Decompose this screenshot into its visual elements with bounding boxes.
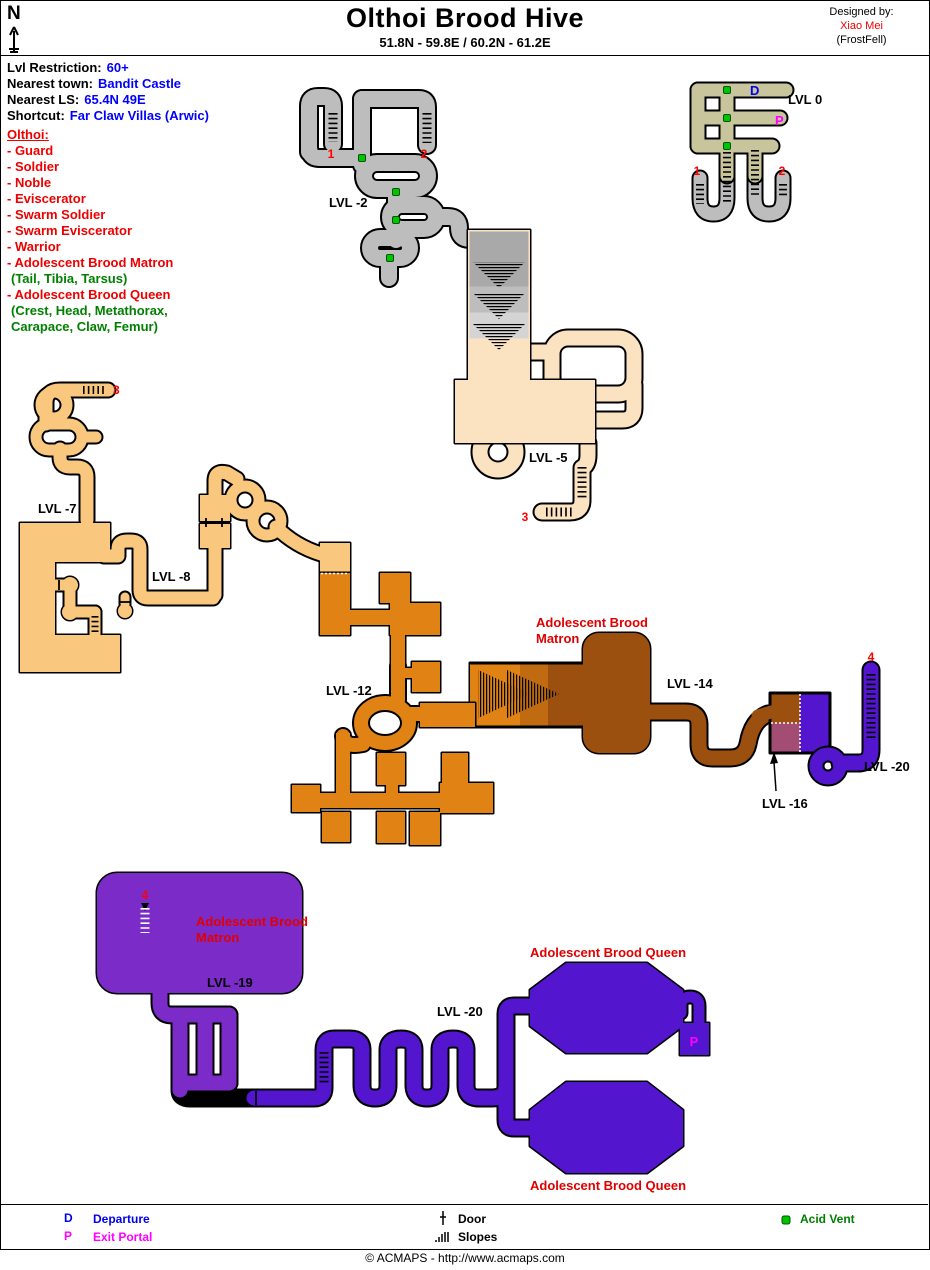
shortcut-value: Far Claw Villas (Arwic) (70, 108, 209, 123)
creature-item: - Eviscerator (7, 191, 257, 207)
slopes-icon (434, 1231, 452, 1246)
lvl-restriction-row: Lvl Restriction:60+ (7, 60, 257, 76)
queen-drops-line1: (Crest, Head, Metathorax, (7, 303, 257, 319)
designer-name: Xiao Mei (799, 19, 924, 33)
door-icon (438, 1210, 448, 1229)
matron-drops: (Tail, Tibia, Tarsus) (7, 271, 257, 287)
designed-by-label: Designed by: (799, 5, 924, 19)
info-panel: Lvl Restriction:60+ Nearest town:Bandit … (7, 60, 257, 335)
nearest-ls-value: 65.4N 49E (84, 92, 145, 107)
nearest-ls-row: Nearest LS:65.4N 49E (7, 92, 257, 108)
creature-item: - Warrior (7, 239, 257, 255)
header-divider (0, 55, 930, 56)
page-title: Olthoi Brood Hive (0, 3, 930, 34)
creature-item: - Soldier (7, 159, 257, 175)
nearest-town-value: Bandit Castle (98, 76, 181, 91)
creature-item: - Swarm Soldier (7, 207, 257, 223)
queen-drops-line2: Carapace, Claw, Femur) (7, 319, 257, 335)
legend-door-label: Door (458, 1212, 486, 1226)
legend-departure-label: Departure (93, 1212, 150, 1226)
copyright-footer: © ACMAPS - http://www.acmaps.com (0, 1251, 930, 1265)
nearest-ls-label: Nearest LS: (7, 92, 79, 107)
legend-acid-vent-label: Acid Vent (800, 1212, 855, 1226)
nearest-town-label: Nearest town: (7, 76, 93, 91)
legend-exit-label: Exit Portal (93, 1230, 152, 1244)
creature-item: - Swarm Eviscerator (7, 223, 257, 239)
nearest-town-row: Nearest town:Bandit Castle (7, 76, 257, 92)
legend-departure-key: D (64, 1211, 73, 1225)
creature-item: - Adolescent Brood Matron (7, 255, 257, 271)
creature-list-heading: Olthoi: (7, 127, 257, 143)
lvl-restriction-value: 60+ (107, 60, 129, 75)
acid-vent-icon (781, 1214, 791, 1228)
legend-exit-key: P (64, 1229, 72, 1243)
designer-credit: Designed by: Xiao Mei (FrostFell) (799, 5, 924, 47)
designer-server: (FrostFell) (799, 33, 924, 47)
lvl-restriction-label: Lvl Restriction: (7, 60, 102, 75)
creature-item: - Guard (7, 143, 257, 159)
map-coordinates: 51.8N - 59.8E / 60.2N - 61.2E (0, 35, 930, 50)
creature-item: - Noble (7, 175, 257, 191)
creature-item: - Adolescent Brood Queen (7, 287, 257, 303)
shortcut-row: Shortcut:Far Claw Villas (Arwic) (7, 108, 257, 124)
legend-slopes-label: Slopes (458, 1230, 497, 1244)
map-legend: D Departure P Exit Portal Door Slopes Ac… (0, 1204, 928, 1250)
shortcut-label: Shortcut: (7, 108, 65, 123)
acmaps-dungeon-map-page: LVL 0 LVL -2 LVL -5 LVL -7 LVL -8 LVL -1… (0, 0, 930, 1270)
